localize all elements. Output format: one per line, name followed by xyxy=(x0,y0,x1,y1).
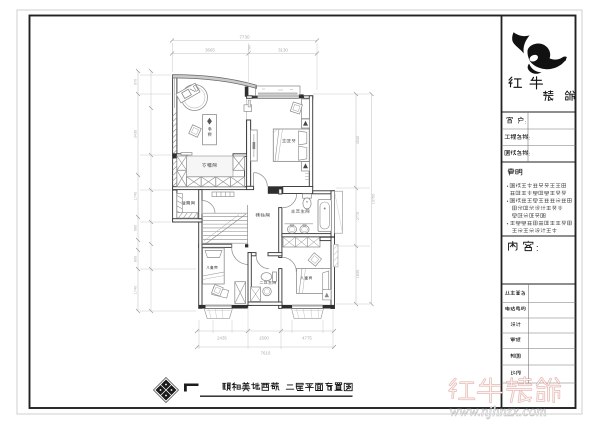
svg-text::: : xyxy=(529,152,530,158)
svg-text:970: 970 xyxy=(134,79,138,85)
svg-text:2775: 2775 xyxy=(356,212,360,220)
svg-text:960: 960 xyxy=(134,225,138,231)
svg-text:2435: 2435 xyxy=(217,336,227,341)
svg-text:10750: 10750 xyxy=(372,194,376,205)
svg-text:www.njhnzx.com: www.njhnzx.com xyxy=(449,404,546,420)
svg-text:4775: 4775 xyxy=(302,336,312,341)
svg-text:1740: 1740 xyxy=(134,286,138,294)
svg-text:780: 780 xyxy=(248,45,252,51)
svg-text:7730: 7730 xyxy=(239,35,250,40)
svg-text:3130: 3130 xyxy=(278,48,288,53)
svg-text:7610: 7610 xyxy=(261,351,271,356)
svg-text:3430: 3430 xyxy=(134,130,138,138)
svg-text:800: 800 xyxy=(134,256,138,262)
svg-text:1500: 1500 xyxy=(259,336,269,341)
svg-text:1740: 1740 xyxy=(134,192,138,200)
svg-text:3665: 3665 xyxy=(205,48,215,53)
svg-text:4530: 4530 xyxy=(356,136,360,144)
svg-text::: : xyxy=(525,120,526,126)
svg-text::: : xyxy=(536,243,539,253)
svg-text:1835: 1835 xyxy=(356,270,360,278)
svg-text::: : xyxy=(529,136,530,142)
